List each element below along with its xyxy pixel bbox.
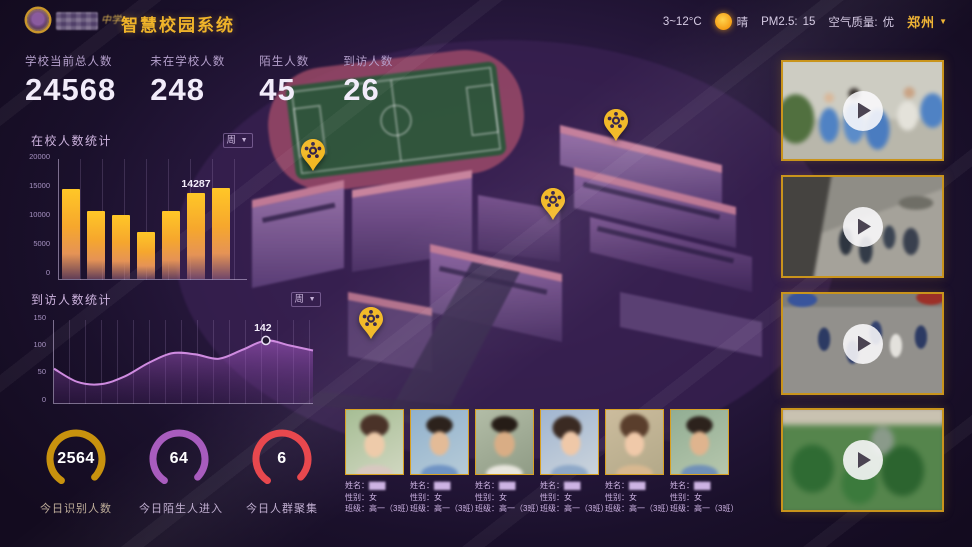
gauge-identified-today: 2564 今日识别人数: [36, 427, 116, 516]
gender-label: 性别：: [475, 493, 499, 502]
gauges-row: 2564 今日识别人数 64 今日陌生人进入 6 今日人群聚集: [36, 427, 322, 516]
name-value-redacted: ▇▇▇: [694, 481, 709, 490]
pm25-value: 15: [803, 16, 816, 28]
bar-series: 14287: [59, 159, 247, 279]
school-logo-icon: [27, 9, 49, 31]
gender-label: 性别：: [670, 493, 694, 502]
name-value-redacted: ▇▇▇: [629, 481, 644, 490]
name-label: 姓名：: [475, 481, 499, 490]
gender-value: 女: [629, 493, 637, 502]
face-photo: [410, 409, 469, 475]
filter-label: 周: [227, 134, 238, 147]
face-card-1[interactable]: 姓名：▇▇▇性别：女班级：高一（3班）: [345, 409, 404, 515]
name-label: 姓名：: [410, 481, 434, 490]
face-card-2[interactable]: 姓名：▇▇▇性别：女班级：高一（3班）: [410, 409, 469, 515]
face-card-5[interactable]: 姓名：▇▇▇性别：女班级：高一（3班）: [605, 409, 664, 515]
filter-label: 周: [295, 293, 306, 306]
name-value-redacted: ▇▇▇: [499, 481, 514, 490]
face-info: 姓名：▇▇▇性别：女班级：高一（3班）: [345, 480, 404, 515]
play-button[interactable]: [843, 324, 883, 364]
face-info: 姓名：▇▇▇性别：女班级：高一（3班）: [605, 480, 664, 515]
play-icon: [858, 219, 871, 235]
bar-7: [212, 188, 230, 279]
camera-feed-3[interactable]: [781, 292, 944, 395]
dashboard: 中学 智慧校园系统 3~12°C 晴 PM2.5: 15 空气质量: 优 郑州 …: [0, 0, 972, 547]
map-alert-pin-2[interactable]: [603, 108, 629, 142]
gold-pin-icon: [300, 138, 326, 172]
play-button[interactable]: [843, 91, 883, 131]
gold-pin-icon: [540, 187, 566, 221]
gauge-label: 今日人群聚集: [242, 500, 322, 516]
class-value: 高一（3班）: [629, 504, 673, 513]
stat-value: 24568: [25, 72, 116, 108]
face-info: 姓名：▇▇▇性别：女班级：高一（3班）: [670, 480, 729, 515]
chart-title: 在校人数统计: [25, 132, 112, 149]
data-point-marker: [262, 336, 270, 344]
gender-value: 女: [369, 493, 377, 502]
week-filter-dropdown[interactable]: 周 ▼: [223, 133, 253, 148]
gender-value: 女: [564, 493, 572, 502]
chevron-down-icon: ▼: [241, 134, 249, 147]
name-label: 姓名：: [540, 481, 564, 490]
stat-not-in-school: 未在学校人数 248: [150, 53, 225, 108]
school-name-redacted: [56, 12, 98, 30]
face-card-6[interactable]: 姓名：▇▇▇性别：女班级：高一（3班）: [670, 409, 729, 515]
class-label: 班级：: [475, 504, 499, 513]
bar-6: [187, 193, 205, 279]
weather-condition: 晴: [737, 14, 749, 30]
line-chart-y-axis: 150 100 50 0: [21, 316, 49, 409]
stat-label: 未在学校人数: [150, 53, 225, 69]
week-filter-dropdown[interactable]: 周 ▼: [291, 292, 321, 307]
line-value-label: 142: [254, 322, 272, 334]
name-label: 姓名：: [345, 481, 369, 490]
stat-label: 学校当前总人数: [25, 53, 116, 69]
chart-title: 到访人数统计: [25, 291, 112, 308]
gold-pin-icon: [358, 306, 384, 340]
city-dropdown[interactable]: 郑州 ▼: [907, 12, 948, 31]
gender-value: 女: [694, 493, 702, 502]
bar-2: [87, 211, 105, 279]
stat-value: 45: [259, 72, 309, 108]
chevron-down-icon: ▼: [309, 293, 317, 306]
gauge-value: 6: [250, 427, 314, 491]
name-label: 姓名：: [605, 481, 629, 490]
visitor-count-chart-panel: 到访人数统计 周 ▼ 150 100 50 0: [25, 291, 321, 413]
pm25-label: PM2.5:: [761, 16, 797, 28]
gauge-value: 64: [147, 427, 211, 491]
top-bar: 中学 智慧校园系统 3~12°C 晴 PM2.5: 15 空气质量: 优 郑州 …: [0, 0, 972, 42]
aqi-label: 空气质量:: [828, 14, 877, 30]
face-photo: [345, 409, 404, 475]
stats-row: 学校当前总人数 24568 未在学校人数 248 陌生人数 45 到访人数 26: [25, 53, 393, 108]
stat-value: 26: [343, 72, 393, 108]
city-name: 郑州: [907, 12, 935, 31]
gauge-strangers-entered-today: 64 今日陌生人进入: [139, 427, 219, 516]
stat-visitors: 到访人数 26: [343, 53, 393, 108]
class-label: 班级：: [605, 504, 629, 513]
class-value: 高一（3班）: [694, 504, 738, 513]
gender-label: 性别：: [410, 493, 434, 502]
map-alert-pin-4[interactable]: [358, 306, 384, 340]
bar-1: [62, 189, 80, 279]
face-info: 姓名：▇▇▇性别：女班级：高一（3班）: [410, 480, 469, 515]
bar-value-label: 14287: [181, 178, 210, 190]
gender-value: 女: [434, 493, 442, 502]
page-title: 智慧校园系统: [121, 11, 235, 36]
face-photo: [605, 409, 664, 475]
class-label: 班级：: [540, 504, 564, 513]
sun-icon: [715, 13, 732, 30]
face-recognition-row: 姓名：▇▇▇性别：女班级：高一（3班）姓名：▇▇▇性别：女班级：高一（3班）姓名…: [345, 409, 729, 515]
bar-4: [137, 232, 155, 279]
stat-value: 248: [150, 72, 225, 108]
chevron-down-icon: ▼: [939, 17, 948, 26]
camera-feed-2[interactable]: [781, 175, 944, 278]
stat-label: 到访人数: [343, 53, 393, 69]
gauge-crowd-gathering-today: 6 今日人群聚集: [242, 427, 322, 516]
face-photo: [670, 409, 729, 475]
in-school-count-chart-panel: 在校人数统计 周 ▼ 20000 15000 10000 5000 0 1428…: [25, 132, 253, 290]
class-value: 高一（3班）: [564, 504, 608, 513]
class-value: 高一（3班）: [434, 504, 478, 513]
stat-strangers: 陌生人数 45: [259, 53, 309, 108]
area-line-chart: [54, 320, 313, 403]
face-photo: [475, 409, 534, 475]
weather-strip: 3~12°C 晴 PM2.5: 15 空气质量: 优 郑州 ▼: [663, 12, 948, 31]
camera-feed-4[interactable]: [781, 408, 944, 512]
play-button[interactable]: [843, 440, 883, 480]
bar-3: [112, 215, 130, 279]
gauge-label: 今日陌生人进入: [139, 500, 219, 516]
bar-chart-y-axis: 20000 15000 10000 5000 0: [25, 155, 53, 285]
stat-label: 陌生人数: [259, 53, 309, 69]
class-label: 班级：: [345, 504, 369, 513]
name-value-redacted: ▇▇▇: [564, 481, 579, 490]
name-label: 姓名：: [670, 481, 694, 490]
map-alert-pin-1[interactable]: [300, 138, 326, 172]
face-info: 姓名：▇▇▇性别：女班级：高一（3班）: [540, 480, 599, 515]
bar-5: [162, 211, 180, 279]
map-alert-pin-3[interactable]: [540, 187, 566, 221]
face-photo: [540, 409, 599, 475]
play-icon: [858, 336, 871, 352]
name-value-redacted: ▇▇▇: [434, 481, 449, 490]
class-label: 班级：: [410, 504, 434, 513]
video-feed-column: [781, 60, 944, 512]
temperature-label: 3~12°C: [663, 16, 702, 28]
gender-label: 性别：: [605, 493, 629, 502]
gauge-value: 2564: [44, 427, 108, 491]
play-button[interactable]: [843, 207, 883, 247]
bar-chart-plot: 14287: [58, 159, 247, 280]
play-icon: [858, 103, 871, 119]
face-card-3[interactable]: 姓名：▇▇▇性别：女班级：高一（3班）: [475, 409, 534, 515]
class-value: 高一（3班）: [499, 504, 543, 513]
aqi-value: 优: [883, 14, 895, 30]
camera-feed-1[interactable]: [781, 60, 944, 161]
class-value: 高一（3班）: [369, 504, 413, 513]
school-name-suffix: 中学: [101, 11, 121, 26]
gender-label: 性别：: [540, 493, 564, 502]
gauge-label: 今日识别人数: [36, 500, 116, 516]
face-info: 姓名：▇▇▇性别：女班级：高一（3班）: [475, 480, 534, 515]
play-icon: [858, 452, 871, 468]
gold-pin-icon: [603, 108, 629, 142]
name-value-redacted: ▇▇▇: [369, 481, 384, 490]
gender-label: 性别：: [345, 493, 369, 502]
face-card-4[interactable]: 姓名：▇▇▇性别：女班级：高一（3班）: [540, 409, 599, 515]
class-label: 班级：: [670, 504, 694, 513]
stat-total-in-school: 学校当前总人数 24568: [25, 53, 116, 108]
line-chart-plot: 142: [53, 320, 313, 404]
gender-value: 女: [499, 493, 507, 502]
